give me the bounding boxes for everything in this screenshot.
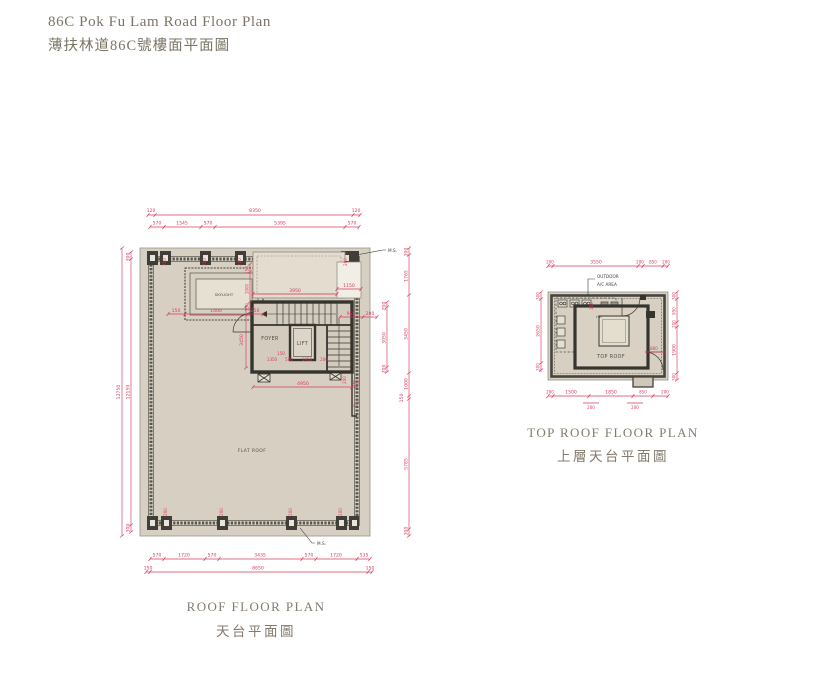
svg-text:200: 200 <box>202 258 207 266</box>
svg-text:200: 200 <box>546 390 554 395</box>
svg-text:570: 570 <box>305 553 314 559</box>
roof-plan-caption-zh: 天台平面圖 <box>216 624 296 639</box>
top-roof-room: TOP ROOF <box>575 306 648 368</box>
flat-roof-label: FLAT ROOF <box>238 448 267 454</box>
svg-text:200: 200 <box>382 365 388 374</box>
svg-text:150: 150 <box>366 566 375 572</box>
svg-text:200: 200 <box>662 260 670 265</box>
svg-text:850: 850 <box>639 390 647 395</box>
svg-text:570: 570 <box>208 553 217 559</box>
svg-text:1545: 1545 <box>176 221 188 227</box>
svg-text:150: 150 <box>144 566 153 572</box>
svg-text:570: 570 <box>153 221 162 227</box>
svg-text:200: 200 <box>219 508 224 516</box>
svg-text:535: 535 <box>360 553 369 559</box>
svg-text:3435: 3435 <box>254 553 266 559</box>
svg-text:120: 120 <box>147 208 156 214</box>
svg-text:150: 150 <box>589 302 594 310</box>
svg-text:200: 200 <box>343 258 348 266</box>
svg-text:150: 150 <box>245 303 250 311</box>
svg-text:1500: 1500 <box>565 390 577 396</box>
top-roof-floor-plan: TOP ROOF OUTDOOR A/C AREA HR 200 3550 20… <box>527 260 698 465</box>
svg-text:200: 200 <box>636 260 644 265</box>
svg-text:200: 200 <box>382 302 388 311</box>
roof-floor-plan: SKYLIGHT FOYER LIFT <box>116 208 411 639</box>
svg-text:200: 200 <box>163 508 168 516</box>
page-title-english: 86C Pok Fu Lam Road Floor Plan <box>48 14 271 30</box>
svg-text:1000: 1000 <box>245 283 250 294</box>
svg-text:300: 300 <box>536 292 541 300</box>
svg-text:120: 120 <box>352 208 361 214</box>
svg-text:200: 200 <box>237 258 242 266</box>
svg-text:150: 150 <box>245 266 250 274</box>
hr-label: HR <box>596 314 602 319</box>
ms-label-top: M.S. <box>388 248 397 253</box>
foyer-label: FOYER <box>261 336 279 342</box>
roof-protrusion <box>633 377 653 387</box>
floor-plan-page: 86C Pok Fu Lam Road Floor Plan 薄扶林道86C號樓… <box>0 0 827 677</box>
svg-text:200: 200 <box>587 405 595 410</box>
svg-text:1720: 1720 <box>330 553 342 559</box>
svg-text:8350: 8350 <box>249 208 261 214</box>
svg-text:200: 200 <box>162 258 167 266</box>
top-roof-caption-zh: 上層天台平面圖 <box>557 449 669 464</box>
svg-text:1000: 1000 <box>404 378 410 390</box>
svg-text:300: 300 <box>126 253 132 262</box>
svg-text:150: 150 <box>399 394 405 403</box>
svg-text:200: 200 <box>631 405 639 410</box>
svg-text:3950: 3950 <box>289 288 301 294</box>
svg-text:12750: 12750 <box>116 385 122 400</box>
svg-text:3050: 3050 <box>382 332 388 344</box>
svg-text:12150: 12150 <box>126 385 132 400</box>
page-title-chinese: 薄扶林道86C號樓面平面圖 <box>48 37 230 54</box>
svg-text:1350: 1350 <box>267 357 278 362</box>
svg-text:300: 300 <box>126 524 132 533</box>
svg-text:950: 950 <box>347 311 356 317</box>
svg-text:570: 570 <box>348 221 357 227</box>
svg-text:200: 200 <box>672 320 677 328</box>
svg-text:5395: 5395 <box>274 221 286 227</box>
svg-text:1400: 1400 <box>210 308 222 314</box>
svg-text:860: 860 <box>650 346 658 351</box>
svg-text:300: 300 <box>672 292 677 300</box>
svg-text:300: 300 <box>404 527 410 536</box>
svg-text:300: 300 <box>404 248 410 257</box>
svg-text:300: 300 <box>536 363 541 371</box>
svg-text:1950: 1950 <box>302 357 313 362</box>
svg-text:200: 200 <box>366 311 375 317</box>
top-roof-caption-en: TOP ROOF FLOOR PLAN <box>527 425 698 440</box>
svg-text:1150: 1150 <box>343 283 355 289</box>
svg-text:200: 200 <box>546 260 554 265</box>
svg-text:2650: 2650 <box>536 325 542 337</box>
svg-text:570: 570 <box>153 553 162 559</box>
svg-text:150: 150 <box>352 380 360 385</box>
svg-text:200: 200 <box>342 376 347 384</box>
svg-text:200: 200 <box>338 508 343 516</box>
ms-label-bottom: M.S. <box>317 541 326 546</box>
svg-text:300: 300 <box>672 373 677 381</box>
svg-text:1850: 1850 <box>605 390 617 396</box>
svg-text:150: 150 <box>251 308 260 314</box>
svg-text:150: 150 <box>172 308 181 314</box>
svg-text:200: 200 <box>288 508 293 516</box>
svg-text:1720: 1720 <box>178 553 190 559</box>
svg-text:850: 850 <box>649 260 657 265</box>
lift-label: LIFT <box>297 341 308 347</box>
outdoor-ac-label-line2: A/C AREA <box>597 282 617 287</box>
svg-text:570: 570 <box>204 221 213 227</box>
svg-text:200: 200 <box>320 357 328 362</box>
svg-text:3550: 3550 <box>590 260 602 266</box>
floor-plan-drawing: 86C Pok Fu Lam Road Floor Plan 薄扶林道86C號樓… <box>0 0 827 677</box>
svg-text:150: 150 <box>277 351 285 356</box>
svg-text:1765: 1765 <box>404 270 410 282</box>
svg-text:5785: 5785 <box>404 458 410 470</box>
roof-plan-caption-en: ROOF FLOOR PLAN <box>187 599 326 614</box>
svg-text:500: 500 <box>285 357 293 362</box>
skylight-label: SKYLIGHT <box>215 292 234 297</box>
svg-text:3450: 3450 <box>239 334 245 346</box>
svg-text:950: 950 <box>672 307 677 315</box>
svg-text:8650: 8650 <box>252 566 264 572</box>
outdoor-ac-label-line1: OUTDOOR <box>597 274 619 279</box>
svg-text:4950: 4950 <box>297 381 309 387</box>
svg-text:1900: 1900 <box>672 344 678 356</box>
svg-text:200: 200 <box>661 390 669 395</box>
svg-text:3450: 3450 <box>404 328 410 340</box>
top-roof-label: TOP ROOF <box>596 354 625 360</box>
